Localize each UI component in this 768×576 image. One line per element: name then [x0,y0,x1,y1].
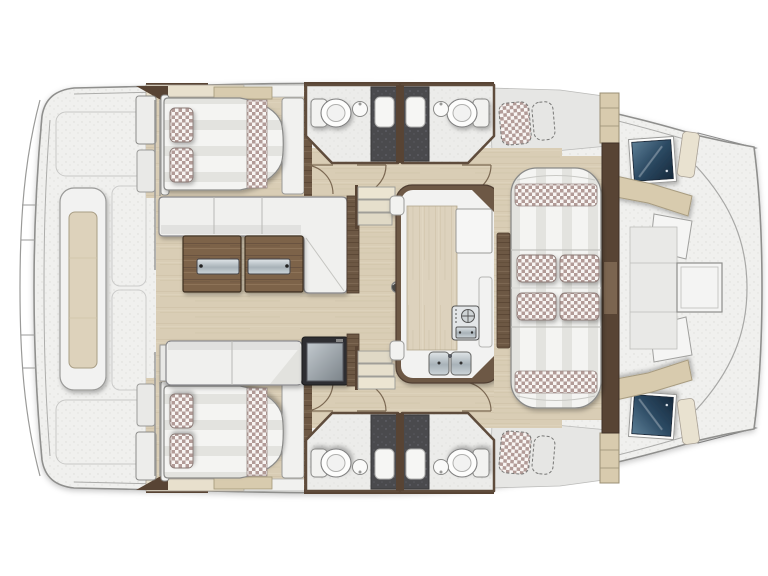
headboard-shelf [214,87,272,99]
fridge-unit [302,337,348,385]
bow-step-platform [677,263,722,312]
lounge-checker-bolster [515,184,597,206]
galley-end-nub [390,341,404,360]
lounge-checker-bolster [515,371,597,393]
forward-bulkhead-door [604,262,617,314]
bathroom-forward [306,85,398,163]
bed-pillow [170,108,193,142]
shower-tray [375,97,394,127]
aft-cockpit [60,188,106,390]
galley-worktop-wood [407,206,457,350]
cabin-seat-panel [137,150,155,192]
galley-island [390,185,500,383]
bow-well-floor [630,227,677,349]
bulkhead-seat-block [600,93,619,143]
bow-hatch-navy [629,136,677,184]
companionway-steps-starboard [355,185,395,229]
bed-foot-cabinet [282,98,304,194]
cabin-vanity-panel [136,96,156,144]
bathroom-aft [402,85,494,163]
table-tray [248,259,290,274]
table-tray [197,259,239,274]
bed-pillow [170,148,193,182]
galley-end-nub [390,196,404,215]
shower-tray [406,97,425,127]
bed-checker-runner [247,100,267,188]
bathroom-divider [396,85,404,163]
galley-counter-inset [456,209,492,253]
saloon-sofa-aft [160,341,302,385]
sink-tap [359,103,362,106]
lounge-side-walnut [497,233,510,348]
toilet [447,99,489,127]
cockpit-lounge [494,143,619,433]
aft-bench-seat [60,188,106,390]
stove [452,306,479,340]
toilet [311,99,351,127]
companionway-steps-port [355,346,395,390]
lounge-pad [511,168,601,408]
galley-tap [448,354,452,358]
sink-tap [440,103,443,106]
double-bed [161,95,283,195]
floor-plan-canvas [0,0,768,576]
